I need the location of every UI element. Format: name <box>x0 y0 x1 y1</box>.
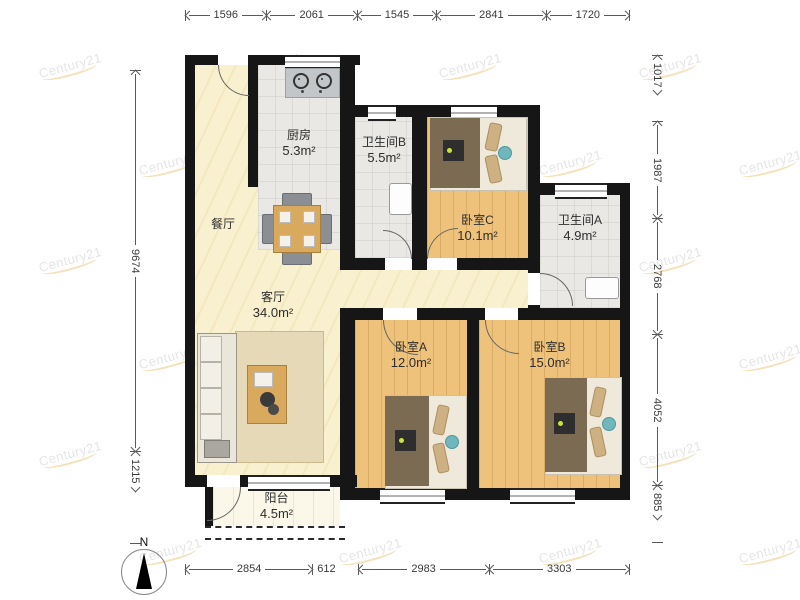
dim-label: 612 <box>313 563 339 575</box>
room-area: 5.3m² <box>258 143 340 159</box>
wall <box>340 308 355 500</box>
dim-label: 4052 <box>651 394 663 426</box>
room-name: 客厅 <box>225 290 321 305</box>
round-pillow <box>498 146 512 160</box>
room-name: 厨房 <box>258 128 340 143</box>
room-label-bed-c: 卧室C 10.1m² <box>427 213 528 244</box>
watermark: Century21 <box>37 438 103 469</box>
washing-machine <box>389 183 412 215</box>
dim-label: 2768 <box>651 260 663 292</box>
corridor-floor <box>340 270 528 308</box>
tv <box>395 430 416 451</box>
dimension-row-bottom: 2854 612 2983 3303 <box>185 562 630 576</box>
bathroom-b-door-gap <box>385 258 412 270</box>
compass-needle-icon <box>136 553 152 589</box>
dim-label: 2983 <box>407 563 439 575</box>
watermark: Century21 <box>737 535 800 566</box>
watermark: Century21 <box>37 244 103 275</box>
entry-door-gap <box>218 55 248 65</box>
stove <box>285 68 340 98</box>
room-label-bath-b: 卫生间B 5.5m² <box>351 135 417 166</box>
bathroom-b-window <box>368 105 396 121</box>
tv <box>443 140 464 161</box>
room-name: 卫生间B <box>351 135 417 150</box>
room-label-balcony: 阳台 4.5m² <box>213 491 340 522</box>
dimension-row-top: 1596 2061 1545 2841 1720 <box>185 8 630 22</box>
room-label-bed-b: 卧室B 15.0m² <box>479 340 620 371</box>
room-label-living: 客厅 34.0m² <box>225 290 321 321</box>
bedroom-c-door-gap <box>427 258 457 270</box>
room-area: 10.1m² <box>427 228 528 244</box>
dim-label: 1596 <box>210 9 242 21</box>
room-name: 卧室C <box>427 213 528 228</box>
watermark: Century21 <box>737 341 800 372</box>
sofa <box>197 333 237 463</box>
room-area: 34.0m² <box>225 305 321 321</box>
room-label-kitchen: 厨房 5.3m² <box>258 128 340 159</box>
room-area: 5.5m² <box>351 150 417 166</box>
dim-label: 3303 <box>543 563 575 575</box>
tv <box>554 413 575 434</box>
watermark: Century21 <box>637 244 703 275</box>
floorplan-page: Century21Century21Century21Century21Cent… <box>0 0 800 600</box>
room-name: 卧室A <box>355 340 467 355</box>
room-area: 4.5m² <box>213 506 340 522</box>
toilet <box>585 277 619 299</box>
living-window <box>248 475 330 491</box>
watermark: Century21 <box>637 438 703 469</box>
room-label-bed-a: 卧室A 12.0m² <box>355 340 467 371</box>
watermark: Century21 <box>37 50 103 81</box>
dim-label: 2841 <box>475 9 507 21</box>
balcony-railing <box>205 526 345 540</box>
bedroom-b-door-gap <box>485 308 518 320</box>
coffee-table <box>247 365 287 424</box>
room-name: 卫生间A <box>540 213 620 228</box>
room-area: 4.9m² <box>540 228 620 244</box>
dim-label: 2854 <box>233 563 265 575</box>
bathroom-a-door-gap <box>528 273 540 305</box>
dimension-col-left: 9674 1215 <box>128 70 142 544</box>
dim-label: 2061 <box>295 9 327 21</box>
dim-label: 1545 <box>381 9 413 21</box>
wall <box>185 55 195 487</box>
dim-label: 1987 <box>651 154 663 186</box>
bedroom-a-window <box>380 488 445 504</box>
compass-north-label: N <box>116 536 172 548</box>
room-name: 阳台 <box>213 491 340 506</box>
room-area: 12.0m² <box>355 355 467 371</box>
wall <box>467 320 479 488</box>
compass-circle <box>121 549 167 595</box>
room-name: 卧室B <box>479 340 620 355</box>
bedroom-b-window <box>510 488 575 504</box>
floorplan: 厨房 5.3m² 餐厅 客厅 34.0m² 卫生间B 5.5m² 卧室C 10.… <box>185 55 630 540</box>
dimension-col-right: 1017 1987 2768 4052 885 <box>650 55 664 543</box>
room-name: 餐厅 <box>195 217 251 232</box>
bedroom-a-door-gap <box>383 308 417 320</box>
round-pillow <box>602 417 616 431</box>
dining-table <box>273 205 321 253</box>
dim-label: 1720 <box>572 9 604 21</box>
watermark: Century21 <box>637 50 703 81</box>
room-area: 15.0m² <box>479 355 620 371</box>
wall <box>248 65 258 187</box>
watermark: Century21 <box>737 147 800 178</box>
balcony-door-gap <box>207 475 240 487</box>
round-pillow <box>445 435 459 449</box>
room-label-dining: 餐厅 <box>195 217 251 232</box>
room-label-bath-a: 卫生间A 4.9m² <box>540 213 620 244</box>
dim-label: 9674 <box>129 245 141 277</box>
compass: N <box>116 536 172 595</box>
bathroom-a-window <box>555 183 607 199</box>
kitchen-window <box>285 55 340 69</box>
